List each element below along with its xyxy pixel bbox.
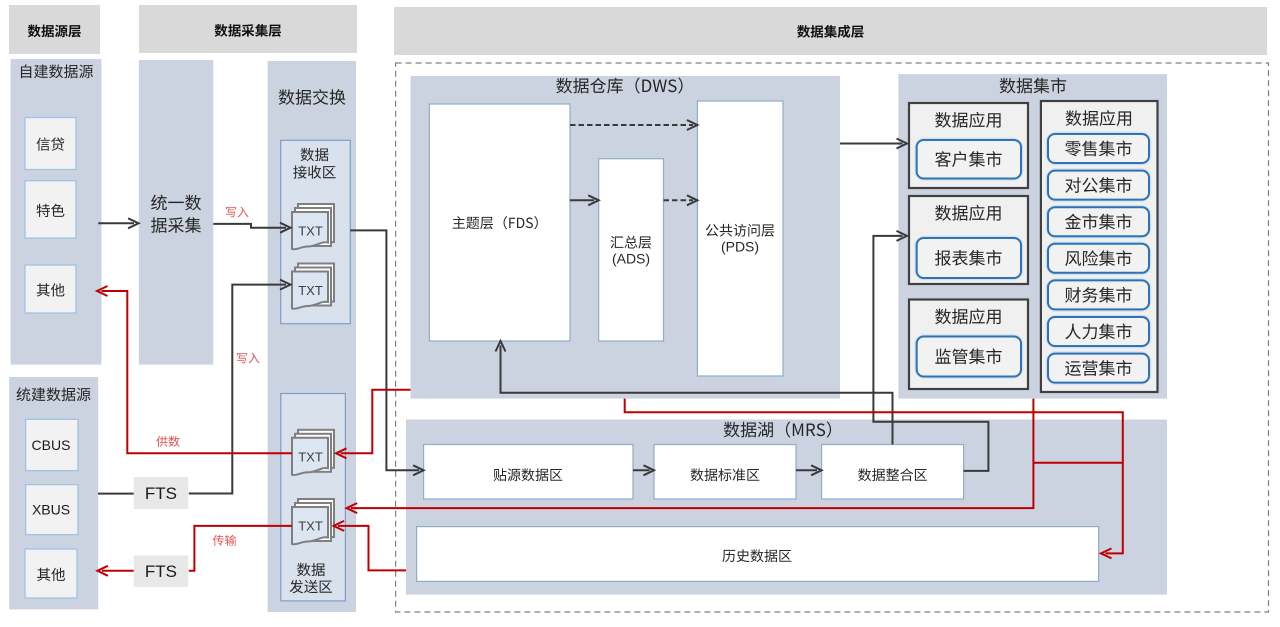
svg-text:FTS: FTS xyxy=(145,484,177,503)
svg-text:FTS: FTS xyxy=(145,562,177,581)
svg-text:(PDS): (PDS) xyxy=(721,239,759,255)
svg-text:CBUS: CBUS xyxy=(32,437,71,453)
svg-text:(ADS): (ADS) xyxy=(612,251,650,267)
svg-text:XBUS: XBUS xyxy=(32,502,70,518)
svg-text:TXT: TXT xyxy=(298,283,323,298)
svg-text:TXT: TXT xyxy=(298,519,323,534)
svg-text:TXT: TXT xyxy=(298,224,323,239)
svg-text:TXT: TXT xyxy=(298,449,323,464)
